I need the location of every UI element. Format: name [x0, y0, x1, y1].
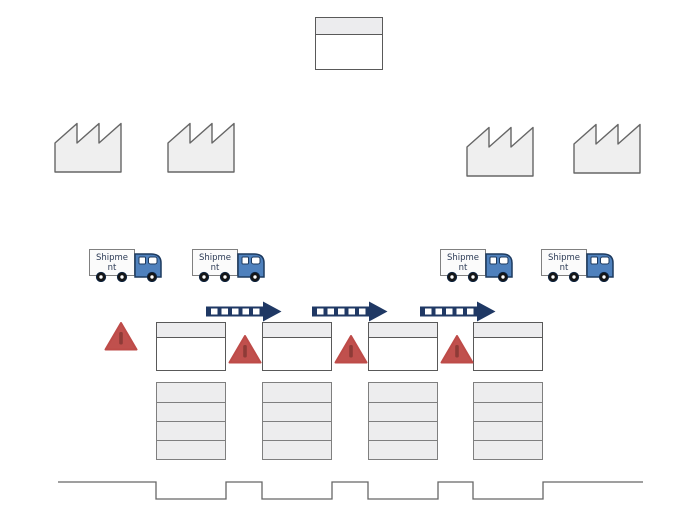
shipment-truck-3: Shipment [440, 244, 516, 282]
warning-triangle-bar [455, 345, 459, 358]
factory-shape [574, 125, 640, 174]
factory-shape [55, 124, 121, 173]
warning-triangle-bar [349, 345, 353, 358]
warning-triangle-icon-1 [104, 321, 138, 351]
data-row [474, 421, 542, 440]
data-row [369, 440, 437, 459]
production-control-box-header [316, 18, 382, 35]
factory-shape [168, 124, 234, 173]
data-row [474, 383, 542, 402]
data-table-1 [156, 382, 226, 460]
data-row [369, 421, 437, 440]
timeline-line [58, 482, 643, 499]
process-box-header [474, 323, 542, 338]
data-row [369, 402, 437, 421]
process-box-1 [156, 322, 226, 371]
warning-triangle-icon-3 [334, 334, 368, 364]
factory-shape [467, 128, 533, 177]
factory-icon-2 [167, 119, 235, 173]
data-row [263, 421, 331, 440]
truck-icon [541, 244, 617, 282]
push-arrow-icon-3 [420, 301, 496, 322]
factory-icon-1 [54, 119, 122, 173]
data-row [263, 383, 331, 402]
process-box-header [369, 323, 437, 338]
process-box-3 [368, 322, 438, 371]
truck-icon [192, 244, 268, 282]
data-table-4 [473, 382, 543, 460]
process-box-header [157, 323, 225, 338]
data-row [263, 440, 331, 459]
push-arrow-icon-1 [206, 301, 282, 322]
data-row [369, 383, 437, 402]
data-row [157, 383, 225, 402]
process-box-header [263, 323, 331, 338]
shipment-truck-4: Shipment [541, 244, 617, 282]
truck-icon [440, 244, 516, 282]
warning-triangle-bar [243, 345, 247, 358]
data-row [474, 440, 542, 459]
production-control-box [315, 17, 383, 70]
truck-icon [89, 244, 165, 282]
push-arrow-icon-2 [312, 301, 388, 322]
data-row [157, 402, 225, 421]
warning-triangle-icon-4 [440, 334, 474, 364]
timeline-ladder [0, 470, 689, 516]
data-table-3 [368, 382, 438, 460]
data-table-2 [262, 382, 332, 460]
process-box-2 [262, 322, 332, 371]
warning-triangle-bar [119, 332, 123, 345]
warning-triangle-icon-2 [228, 334, 262, 364]
factory-icon-4 [573, 120, 641, 174]
data-row [474, 402, 542, 421]
vsm-diagram-canvas: Shipment Shipment [0, 0, 689, 516]
data-row [157, 421, 225, 440]
shipment-truck-2: Shipment [192, 244, 268, 282]
factory-icon-3 [466, 123, 534, 177]
shipment-truck-1: Shipment [89, 244, 165, 282]
data-row [263, 402, 331, 421]
data-row [157, 440, 225, 459]
process-box-4 [473, 322, 543, 371]
